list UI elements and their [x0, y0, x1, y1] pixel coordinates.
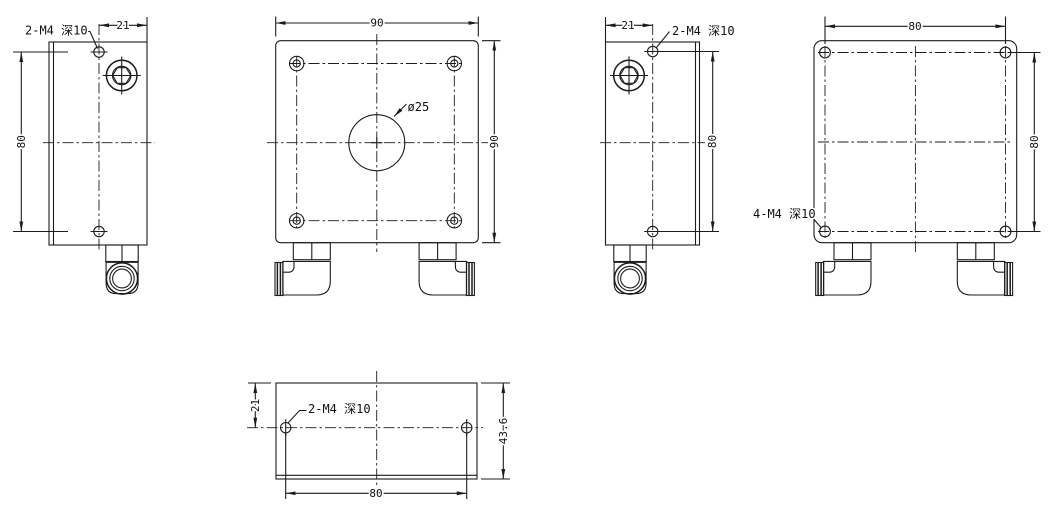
engineering-drawing-canvas: 21 80 2-M4 深10	[0, 0, 1062, 513]
elbow-fitting-left	[275, 243, 330, 296]
elbow-fitting-end	[614, 245, 646, 294]
centerlines	[818, 46, 1013, 252]
centerlines	[43, 24, 155, 250]
dim-width-text: 80	[908, 20, 921, 33]
dim-width-text: 80	[369, 487, 382, 500]
dim-depth: 43.6	[481, 383, 510, 479]
dim-width: 80	[286, 434, 467, 501]
dim-height-text: 80	[15, 135, 28, 148]
dim-width: 80	[825, 17, 1006, 45]
front-view: ø25 90 90	[267, 17, 501, 296]
dim-height-text: 80	[706, 135, 719, 148]
dim-width-text: 21	[621, 19, 634, 32]
dim-height-text: 80	[1028, 135, 1041, 148]
side-view-right: 21 80 2-M4 深10	[600, 17, 735, 294]
rear-view: 80 80 4-M4 深10	[753, 17, 1041, 296]
dim-width: 90	[276, 17, 479, 37]
dim-height: 80	[13, 52, 68, 232]
thread-callout: 4-M4 深10	[753, 207, 822, 228]
counterbore-screw	[103, 57, 141, 95]
thread-callout: 2-M4 深10	[288, 402, 371, 423]
dim-width-text: 21	[116, 19, 129, 32]
side-view-left: 21 80 2-M4 深10	[13, 17, 155, 294]
bore-callout-text: ø25	[408, 100, 430, 114]
dim-height: 90	[482, 41, 501, 243]
dim-offset-text: 21	[249, 399, 262, 412]
thread-callout-text: 2-M4 深10	[25, 24, 88, 38]
bore-callout: ø25	[394, 100, 429, 117]
body-outline	[49, 42, 147, 245]
elbow-fitting-right	[419, 243, 474, 296]
dim-width: 21	[99, 17, 147, 42]
centerlines	[247, 371, 483, 487]
drawing-page: 21 80 2-M4 深10	[0, 0, 1062, 513]
thread-callout-text: 4-M4 深10	[753, 207, 816, 221]
elbow-fitting-left	[816, 243, 871, 296]
centerlines	[600, 24, 705, 250]
center-bore	[349, 115, 405, 171]
thread-callout: 2-M4 深10	[25, 24, 98, 49]
thread-callout-text: 2-M4 深10	[308, 402, 371, 416]
dim-height-text: 90	[488, 135, 501, 148]
thread-callout-text: 2-M4 深10	[672, 24, 735, 38]
bottom-view: 21 43.6 80 2-M4 深10	[247, 371, 510, 500]
dim-offset: 21	[248, 383, 271, 428]
counterbore-screw	[610, 57, 648, 95]
dim-width-text: 90	[370, 17, 383, 30]
dim-height: 80	[658, 52, 719, 232]
elbow-fitting-end	[106, 245, 138, 294]
dim-depth-text: 43.6	[497, 418, 510, 445]
dim-height: 80	[1010, 53, 1041, 232]
dim-width: 21	[606, 17, 653, 42]
elbow-fitting-right	[957, 243, 1012, 296]
